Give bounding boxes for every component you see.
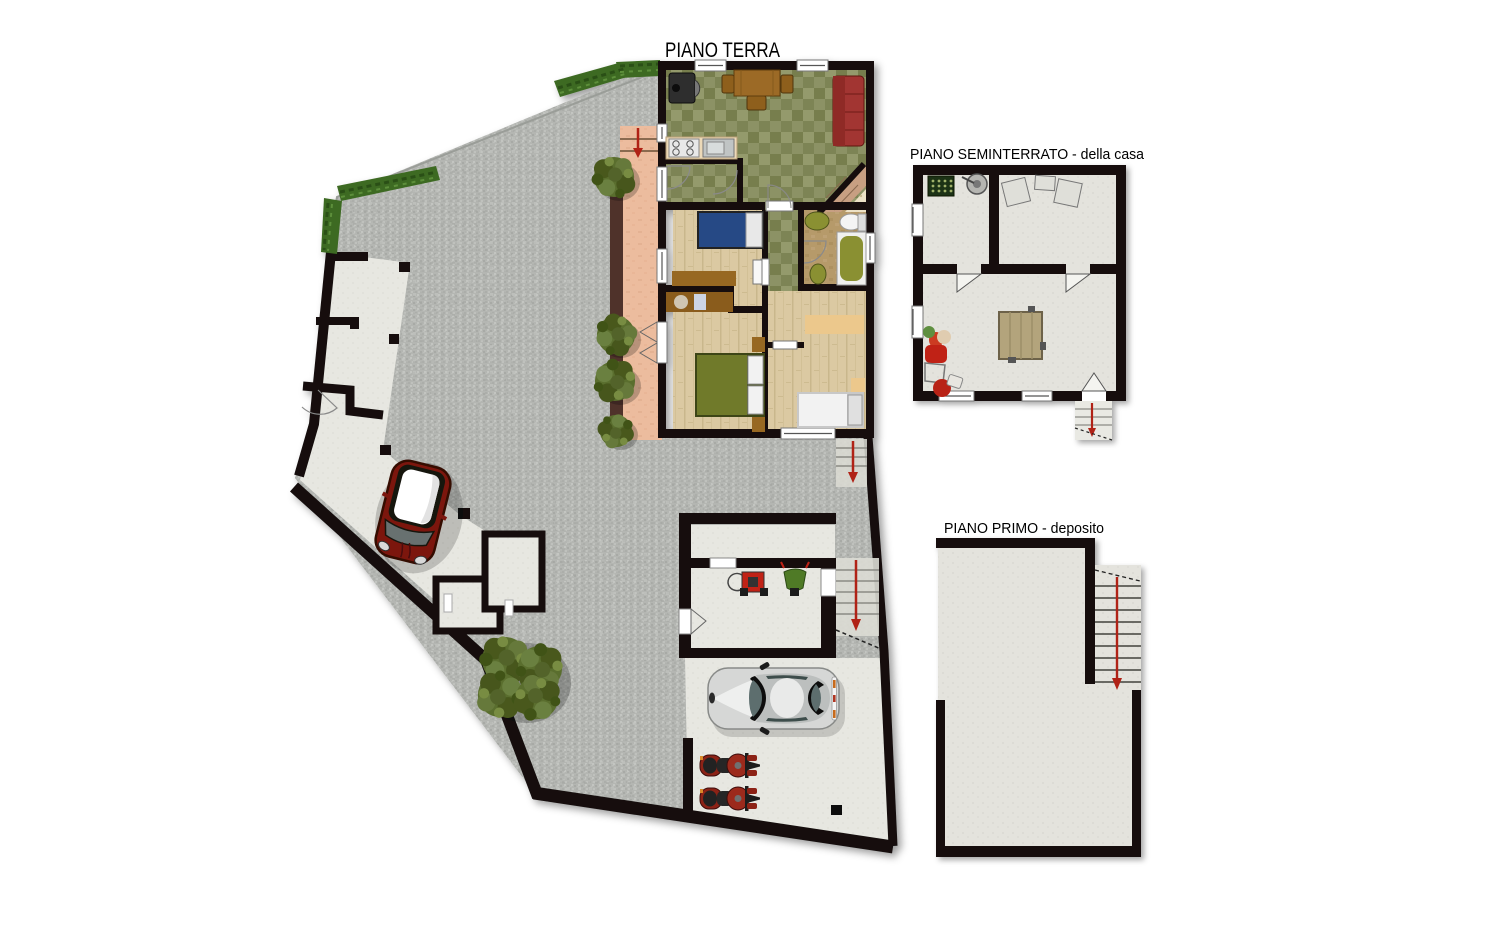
svg-text:PIANO TERRA: PIANO TERRA [665,39,780,62]
svg-text:PIANO PRIMO - deposito: PIANO PRIMO - deposito [944,521,1104,537]
svg-text:PIANO SEMINTERRATO - della cas: PIANO SEMINTERRATO - della casa [910,147,1145,163]
